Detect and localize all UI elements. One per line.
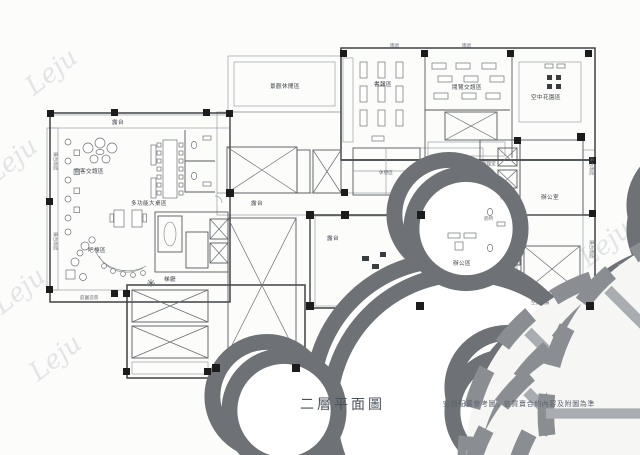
label-storage: 儲藏室 [500,194,514,201]
label-balcony-left-upper: 陽台雨遮 [52,152,59,171]
label-office: 辦公室 [541,193,559,201]
disclaimer-note: 空間配置參考圖，依買賣合約內容及附圖為準 [443,399,595,408]
label-terrace-mid: 露台 [251,199,263,207]
label-stair-hall: 梯廳 [164,275,176,283]
label-big-table: 多功能大桌區 [131,199,167,207]
plan-title: 二層平面圖 [300,397,385,413]
elevator-box [210,219,228,239]
label-balcony-left-lower: 陽台雨遮 [52,232,59,251]
floor-plan-page: Leju Leju Leju Leju Leju [0,0,640,455]
label-lounge: 會客交誼區 [74,167,104,175]
void-box [227,147,297,193]
floor-plan-drawing: Leju Leju Leju Leju Leju [0,0,640,455]
label-terrace-garden: 露台 [327,234,339,242]
elevator-box [498,148,517,166]
label-balcony-right-lower: 陽台雨遮 [588,240,595,259]
label-garden-strip: 庭園造景 [80,294,99,301]
elevator-box [210,243,228,263]
label-roof-terrace: 景觀休閒區 [270,82,300,90]
label-rest-area: 休憩區 [379,169,393,176]
label-reading-room: 書報區 [374,80,392,88]
label-bar: 吧檯區 [88,246,106,254]
label-balcony-right-upper: 陽台雨遮 [588,157,595,176]
label-reading-lounge: 閱覽交誼區 [452,83,482,91]
watermark-text: Leju [0,261,52,321]
label-terrace-top: 露台 [112,118,124,126]
label-sky-garden: 空中花園區 [531,93,561,101]
void-box [132,290,208,322]
watermark-text: Leju [0,131,44,191]
label-canopy-b: 雨遮 [462,42,472,49]
void-box [445,112,497,140]
watermark-text: Leju [19,42,84,102]
label-equipment-strip: 空調設備 [531,299,550,306]
void-box [132,326,208,358]
label-restroom: 廁所 [484,215,494,222]
reading-room-desks [360,62,403,141]
reading-lounge-tables [432,63,504,99]
label-office-2: 辦公區 [453,259,471,267]
watermark-text: Leju [23,328,88,388]
label-management: 管理室 [482,160,496,167]
label-canopy-a: 雨遮 [390,42,400,49]
void-box [313,150,341,193]
